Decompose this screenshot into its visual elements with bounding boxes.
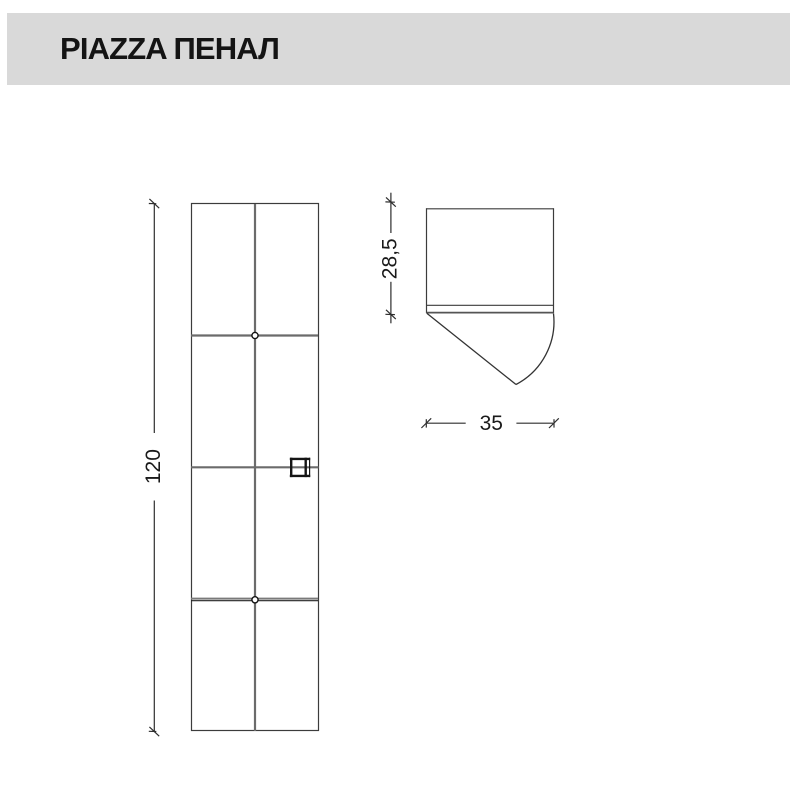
svg-text:35: 35 <box>480 412 503 435</box>
svg-text:120: 120 <box>142 449 165 484</box>
svg-text:28,5: 28,5 <box>378 238 401 279</box>
